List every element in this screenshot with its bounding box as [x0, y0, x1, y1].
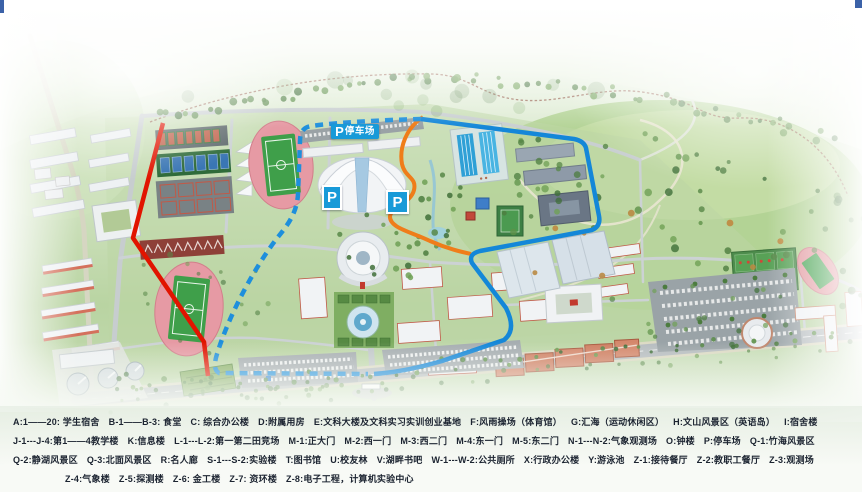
legend-entry: A:1——20: 学生宿舍 — [13, 415, 100, 428]
parking-sign-icon: P — [386, 190, 409, 214]
frame-fragment — [855, 0, 862, 8]
legend-entry: S-1---S-2:实验楼 — [207, 453, 277, 466]
admin-building — [545, 284, 603, 323]
legend-entry: D:附属用房 — [258, 415, 305, 428]
legend-entry: X:行政办公楼 — [524, 453, 579, 466]
legend-row-4: Z-4:气象楼Z-5:探测楼Z-6: 金工楼Z-7: 资环楼Z-8:电子工程，计… — [13, 469, 854, 488]
round-building — [337, 232, 389, 289]
legend-entry: N-1---N-2:气象观测场 — [568, 434, 657, 447]
parking-banner: P停车场 — [331, 124, 379, 139]
frame-fragment — [0, 0, 4, 13]
legend-entry: Z-2:教职工餐厅 — [697, 453, 760, 466]
legend-entry: Q-2:静湖风景区 — [13, 453, 78, 466]
legend-row-1: A:1——20: 学生宿舍B-1——B-3: 食堂C: 综合办公楼D:附属用房E… — [13, 412, 854, 431]
legend-entry: K:信息楼 — [128, 434, 166, 447]
legend-entry: M-4:东一门 — [456, 434, 503, 447]
legend-entry: L-1---L-2:第一第二田竞场 — [174, 434, 279, 447]
campus-map: P停车场 P P A:1——20: 学生宿舍B-1——B-3: 食堂C: 综合办… — [0, 0, 862, 492]
legend-entry: Y:游泳池 — [588, 453, 624, 466]
legend-row-3: Q-2:静湖风景区Q-3:北面风景区R:名人廊S-1---S-2:实验楼T:图书… — [13, 450, 854, 469]
legend-entry: Q-1:竹海风景区 — [750, 434, 815, 447]
legend-entry: Z-5:探测楼 — [119, 472, 164, 485]
legend-entry: Z-7: 资环楼 — [229, 472, 277, 485]
legend-entry: U:校友林 — [330, 453, 368, 466]
legend-entry: W-1---W-2:公共厕所 — [431, 453, 514, 466]
legend-entry: T:图书馆 — [286, 453, 322, 466]
parking-icon: P — [335, 125, 344, 138]
east-parking-lot — [648, 268, 802, 352]
legend-entry: M-2:西一门 — [344, 434, 391, 447]
legend-entry: O:钟楼 — [666, 434, 695, 447]
legend-entry: M-5:东二门 — [512, 434, 559, 447]
legend-entry: I:宿舍楼 — [784, 415, 818, 428]
sports-courts — [152, 125, 234, 218]
legend-row-2: J-1---J-4:第1——4教学楼K:信息楼L-1---L-2:第一第二田竞场… — [13, 431, 854, 450]
legend: A:1——20: 学生宿舍B-1——B-3: 食堂C: 综合办公楼D:附属用房E… — [0, 406, 862, 492]
legend-entry: Z-4:气象楼 — [65, 472, 110, 485]
legend-entry: P:停车场 — [704, 434, 741, 447]
parking-sign-icon: P — [322, 185, 342, 210]
legend-entry: R:名人廊 — [161, 453, 199, 466]
swimming-pools — [450, 124, 508, 186]
legend-entry: M-1:正大门 — [289, 434, 336, 447]
legend-entry: F:风雨操场（体育馆） — [470, 415, 562, 428]
legend-entry: J-1---J-4:第1——4教学楼 — [13, 434, 119, 447]
legend-entry: Z-8:电子工程，计算机实验中心 — [286, 472, 414, 485]
legend-entry: C: 综合办公楼 — [191, 415, 250, 428]
parking-banner-label: 停车场 — [345, 127, 375, 137]
legend-entry: H:文山风景区（英语岛） — [673, 415, 775, 428]
legend-entry: G:汇海（运动休闲区） — [571, 415, 664, 428]
legend-entry: Z-6: 金工楼 — [173, 472, 221, 485]
legend-entry: V:湖畔书吧 — [377, 453, 423, 466]
legend-entry: M-3:西二门 — [400, 434, 447, 447]
legend-entry: Q-3:北面风景区 — [87, 453, 152, 466]
legend-entry: E:文科大楼及文科实习实训创业基地 — [314, 415, 461, 428]
legend-entry: Z-1:接待餐厅 — [634, 453, 688, 466]
formal-garden — [334, 292, 394, 348]
legend-entry: Z-3:观测场 — [769, 453, 814, 466]
legend-entry: B-1——B-3: 食堂 — [109, 415, 182, 428]
